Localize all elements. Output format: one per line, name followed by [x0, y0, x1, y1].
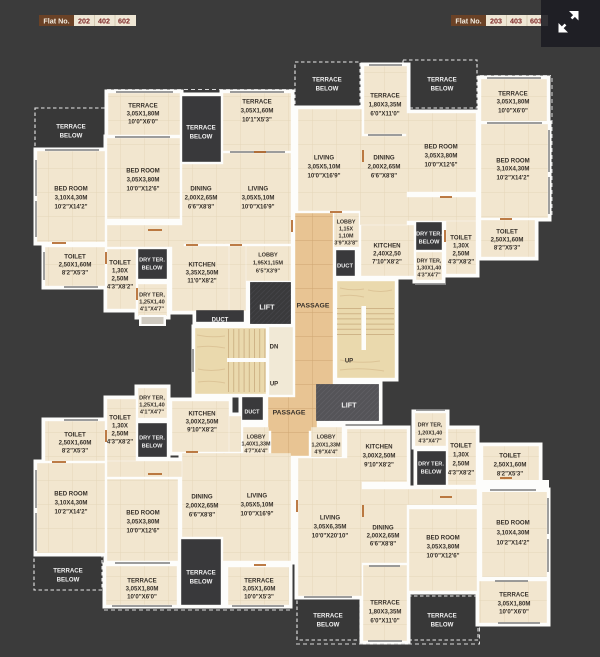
svg-text:BED ROOM3,10X4,30M10'2"X14'2": BED ROOM3,10X4,30M10'2"X14'2" [496, 157, 530, 181]
svg-text:403: 403 [510, 17, 522, 26]
svg-text:KITCHEN3,00X2,50M9'10"X8'2": KITCHEN3,00X2,50M9'10"X8'2" [186, 410, 219, 433]
svg-text:PASSAGE: PASSAGE [273, 409, 306, 416]
svg-text:LIFT: LIFT [341, 400, 357, 409]
svg-text:DRY TER,1,25X1,404'1"X4'7": DRY TER,1,25X1,404'1"X4'7" [139, 292, 165, 312]
svg-text:BED ROOM3,05X3,80M10'0"X12'6": BED ROOM3,05X3,80M10'0"X12'6" [424, 143, 458, 168]
svg-text:KITCHEN3,00X2,50M9'10"X8'2": KITCHEN3,00X2,50M9'10"X8'2" [363, 443, 396, 468]
svg-text:KITCHEN2,40X2,507'10"X8'2": KITCHEN2,40X2,507'10"X8'2" [372, 242, 402, 265]
svg-text:BED ROOM3,05X3,80M10'0"X12'6": BED ROOM3,05X3,80M10'0"X12'6" [126, 509, 160, 534]
svg-text:402: 402 [98, 17, 110, 26]
svg-text:DUCT: DUCT [337, 263, 354, 269]
svg-text:TERRACE3,05X1,80M10'0"X6'0": TERRACE3,05X1,80M10'0"X6'0" [497, 90, 530, 114]
svg-text:DRY TER,1,20X1,404'3"X4'7": DRY TER,1,20X1,404'3"X4'7" [418, 422, 443, 444]
svg-text:203: 203 [490, 17, 502, 26]
svg-text:DUCT: DUCT [245, 409, 261, 415]
svg-text:PASSAGE: PASSAGE [297, 302, 330, 309]
svg-text:TERRACE1,80X3,35M6'0"X11'0": TERRACE1,80X3,35M6'0"X11'0" [369, 92, 402, 117]
svg-text:TERRACE3,05X1,80M10'0"X6'0": TERRACE3,05X1,80M10'0"X6'0" [498, 591, 531, 615]
svg-text:603: 603 [530, 17, 542, 26]
svg-text:TERRACE1,80X3,35M6'0"X11'0": TERRACE1,80X3,35M6'0"X11'0" [369, 599, 402, 624]
svg-text:DRY TER,1,30X1,404'3"X4'7": DRY TER,1,30X1,404'3"X4'7" [417, 258, 442, 278]
svg-text:TERRACE3,05X1,80M10'0"X6'0": TERRACE3,05X1,80M10'0"X6'0" [127, 102, 160, 125]
svg-text:202: 202 [78, 17, 90, 26]
svg-text:BED ROOM3,10X4,30M10'2"X14'2": BED ROOM3,10X4,30M10'2"X14'2" [54, 490, 88, 515]
svg-text:Flat No.: Flat No. [455, 17, 481, 26]
svg-text:TERRACE3,05X1,60M10'0"X5'3": TERRACE3,05X1,60M10'0"X5'3" [243, 577, 276, 600]
svg-text:UP: UP [345, 358, 353, 364]
svg-text:BED ROOM3,05X3,80M10'0"X12'6": BED ROOM3,05X3,80M10'0"X12'6" [426, 534, 460, 559]
svg-text:TERRACE3,05X1,80M10'0"X6'0": TERRACE3,05X1,80M10'0"X6'0" [126, 577, 159, 600]
svg-text:DRY TER,1,25X1,404'1"X4'7": DRY TER,1,25X1,404'1"X4'7" [139, 395, 165, 415]
svg-text:KITCHEN3,35X2,50M11'0"X8'2": KITCHEN3,35X2,50M11'0"X8'2" [186, 261, 219, 284]
svg-text:LIFT: LIFT [259, 302, 275, 311]
svg-text:DN: DN [270, 344, 279, 350]
svg-text:UP: UP [270, 381, 278, 387]
svg-text:BED ROOM3,05X3,80M10'0"X12'6": BED ROOM3,05X3,80M10'0"X12'6" [126, 167, 160, 192]
svg-text:DUCT: DUCT [212, 317, 229, 323]
svg-text:602: 602 [118, 17, 130, 26]
svg-text:BED ROOM3,10X4,30M10'2"X14'2": BED ROOM3,10X4,30M10'2"X14'2" [54, 185, 88, 210]
svg-text:Flat No.: Flat No. [43, 17, 69, 26]
svg-text:BED ROOM3,10X4,30M10'2"X14'2": BED ROOM3,10X4,30M10'2"X14'2" [496, 519, 530, 546]
svg-text:TERRACE3,05X1,60M10'1"X5'3": TERRACE3,05X1,60M10'1"X5'3" [241, 98, 274, 123]
